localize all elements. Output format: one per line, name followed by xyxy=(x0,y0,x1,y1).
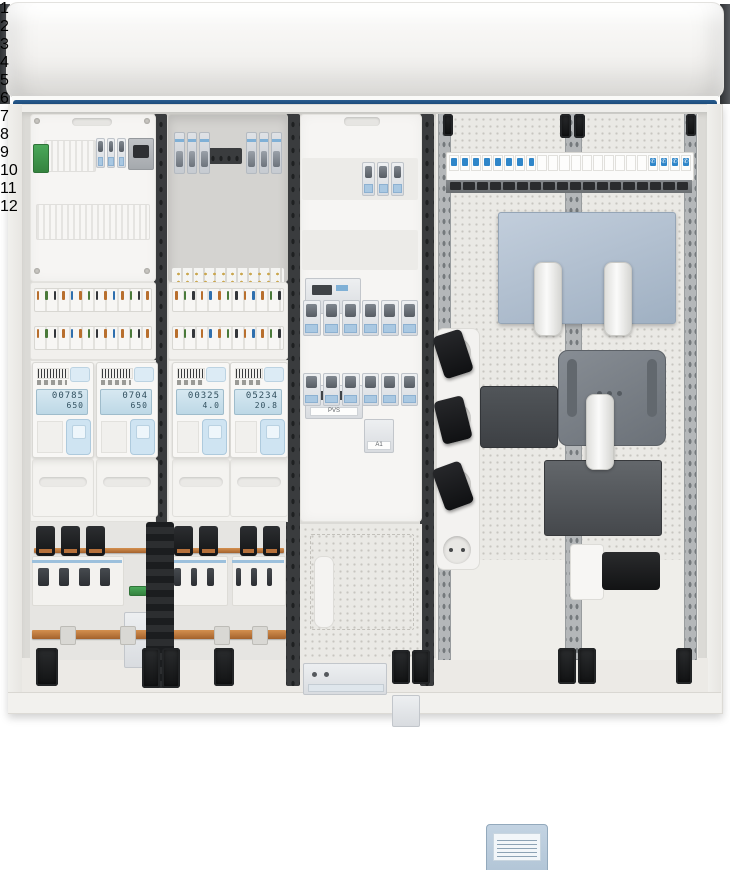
bottom-clamp xyxy=(558,648,576,684)
callout-badge-7[interactable]: 7 xyxy=(0,108,730,126)
bottom-clamp xyxy=(142,648,160,688)
callout-badge-6[interactable]: 6 xyxy=(0,90,730,108)
callout-badge-3[interactable]: 3 xyxy=(0,36,730,54)
holding-strap xyxy=(604,262,632,336)
callout-badge-1[interactable]: 1 xyxy=(0,0,730,18)
bottom-clamp xyxy=(578,648,596,684)
bottom-clamp xyxy=(676,648,692,684)
annotated-cabinet-image: PVS A1 ✆✆✆✆ xyxy=(0,0,730,870)
holding-strap xyxy=(534,262,562,336)
callout-badge-8[interactable]: 8 xyxy=(0,126,730,144)
callout-badge-4[interactable]: 4 xyxy=(0,54,730,72)
callout-badge-12[interactable]: 12 xyxy=(0,198,730,216)
bottom-clamp xyxy=(36,648,58,686)
callout-badge-11[interactable]: 11 xyxy=(0,180,730,198)
callout-badge-2[interactable]: 2 xyxy=(0,18,730,36)
bottom-clamp xyxy=(412,650,430,684)
callout-badge-5[interactable]: 5 xyxy=(0,72,730,90)
bottom-clamp xyxy=(214,648,234,686)
callout-badge-9[interactable]: 9 xyxy=(0,144,730,162)
holding-strap xyxy=(586,394,614,470)
bottom-clamp xyxy=(162,648,180,688)
callout-badge-10[interactable]: 10 xyxy=(0,162,730,180)
bottom-clamp xyxy=(392,650,410,684)
